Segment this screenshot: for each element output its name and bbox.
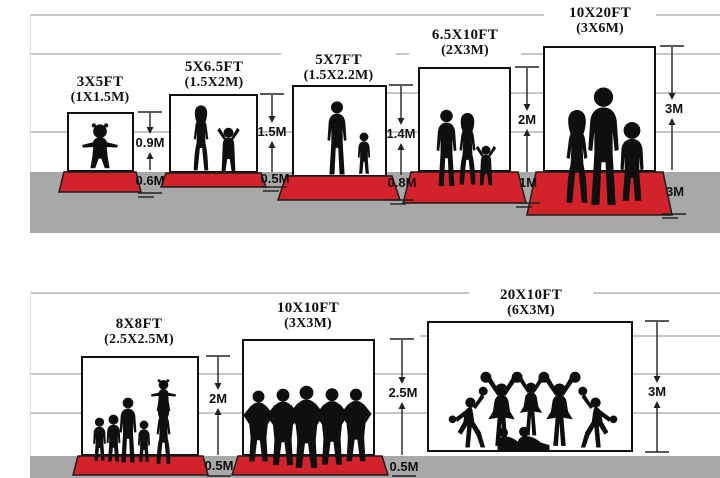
toddler-silhouette [82, 123, 118, 168]
woman-silhouette [194, 105, 209, 170]
waving-child-silhouette [217, 128, 240, 172]
dimension-label: 0.8M [377, 176, 427, 190]
dimension-label: 1M [503, 176, 553, 190]
athlete-silhouette [340, 389, 371, 462]
size-m-label: (1.5X2.2M) [281, 68, 396, 84]
panel-title-10x20: 10X20FT (3X6M) [544, 5, 656, 37]
dimension-label: 0.5M [379, 460, 429, 474]
panel-title-10x10: 10X10FT (3X3M) [251, 300, 365, 332]
man-silhouette [120, 398, 137, 463]
dimension-label: 2.5M [378, 386, 428, 400]
kid-silhouette [107, 415, 121, 462]
dimension-label: 1.4M [376, 127, 426, 141]
panel-title-3x5: 3X5FT (1X1.5M) [55, 74, 145, 106]
size-m-label: (6X3M) [469, 303, 593, 319]
dimension-label: 2M [502, 113, 552, 127]
panel-title-65x10: 6.5X10FT (2X3M) [409, 27, 521, 59]
athlete-silhouette [243, 391, 273, 462]
size-m-label: (1X1.5M) [55, 90, 145, 106]
kid-silhouette [93, 418, 106, 461]
athlete-silhouette [267, 389, 300, 465]
man-silhouette [328, 101, 347, 174]
athlete-silhouette [316, 388, 349, 464]
panel-title-8x8: 8X8FT (2.5X2.5M) [77, 316, 201, 348]
size-ft-label: 20X10FT [469, 287, 593, 303]
cheerleader-silhouette [538, 372, 580, 446]
dimension-label: 3M [632, 385, 682, 399]
size-ft-label: 10X10FT [251, 300, 365, 316]
dimension-label: 3M [649, 102, 699, 116]
panel-title-5x7: 5X7FT (1.5X2.2M) [281, 52, 396, 84]
size-ft-label: 10X20FT [544, 5, 656, 21]
size-ft-label: 6.5X10FT [409, 27, 521, 43]
size-ft-label: 5X7FT [281, 52, 396, 68]
size-m-label: (3X6M) [544, 21, 656, 37]
dimension-label: 0.5M [194, 459, 244, 473]
cheerleader-silhouette [449, 387, 488, 448]
size-ft-label: 8X8FT [77, 316, 201, 332]
dimension-label: 2M [193, 392, 243, 406]
size-comparison-diagram: 3X5FT (1X1.5M) 5X6.5FT (1.5X2M) 5X7FT (1… [0, 0, 720, 478]
size-m-label: (1.5X2M) [166, 75, 262, 91]
dimension-label: 0.5M [250, 172, 300, 186]
size-m-label: (2X3M) [409, 43, 521, 59]
panel-title-20x10: 20X10FT (6X3M) [469, 287, 593, 319]
size-m-label: (3X3M) [251, 316, 365, 332]
size-ft-label: 5X6.5FT [166, 59, 262, 75]
boy-silhouette [358, 133, 370, 174]
dimension-label: 3M [650, 185, 700, 199]
dimension-label: 0.6M [125, 174, 175, 188]
panel-title-5x65: 5X6.5FT (1.5X2M) [166, 59, 262, 91]
size-m-label: (2.5X2.5M) [77, 332, 201, 348]
woman-silhouette [157, 402, 171, 464]
dimension-label: 0.9M [125, 136, 175, 150]
size-ft-label: 3X5FT [55, 74, 145, 90]
cheerleader-silhouette [578, 387, 617, 448]
dimension-label: 1.5M [247, 125, 297, 139]
